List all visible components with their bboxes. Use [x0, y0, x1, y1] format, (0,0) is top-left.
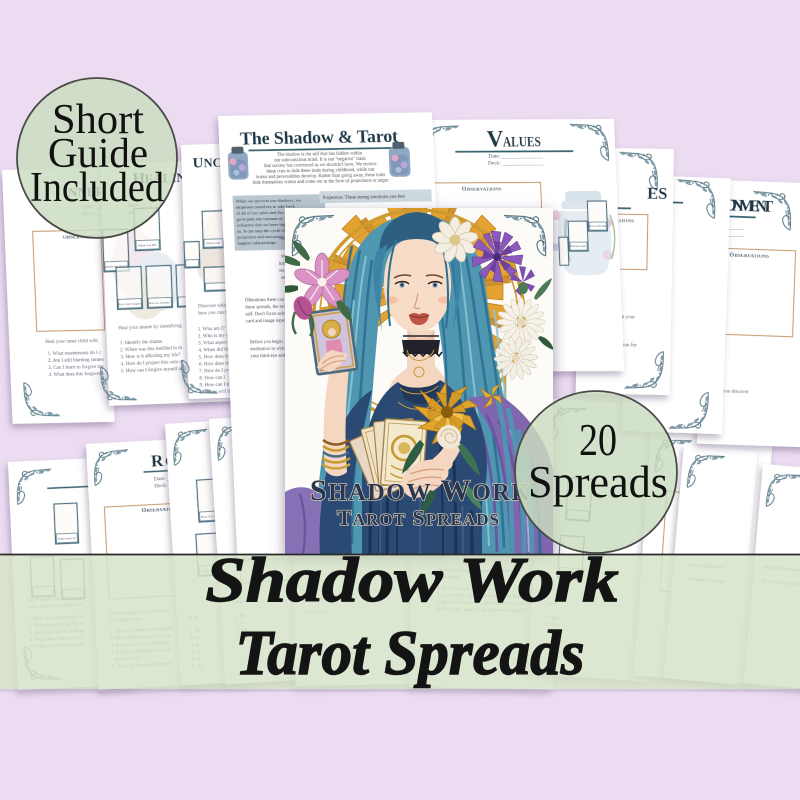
svg-text:U: U	[192, 155, 203, 171]
svg-text:How do I project: How do I project	[148, 300, 170, 305]
svg-text:card and image repres: card and image repres	[246, 319, 288, 325]
svg-text:happier relationships.: happier relationships.	[237, 240, 277, 246]
svg-text:7. How do I pr: 7. How do I pr	[199, 369, 229, 375]
svg-text:V: V	[486, 127, 504, 152]
svg-text:R: R	[150, 451, 164, 471]
svg-text:ES: ES	[647, 184, 668, 203]
svg-text:grow past any traumas or: grow past any traumas or	[236, 216, 283, 222]
svg-text:Deck: _______________: Deck: _______________	[488, 160, 544, 166]
svg-text:The Shadow & Tarot: The Shadow & Tarot	[240, 126, 399, 149]
svg-text:Oftentimes there can b: Oftentimes there can b	[245, 298, 288, 304]
svg-text:Included: Included	[30, 165, 164, 211]
svg-text:these spreads, the mor: these spreads, the mor	[245, 305, 287, 311]
svg-text:9. How can I b: 9. How can I b	[200, 383, 230, 389]
svg-text:Shadow Work: Shadow Work	[206, 544, 619, 615]
svg-text:Discover which: Discover which	[198, 304, 230, 310]
svg-text:us. It can stop the cycle of: us. It can stop the cycle of	[237, 228, 286, 234]
svg-text:What has been: What has been	[568, 244, 586, 248]
svg-text:5. How does th: 5. How does th	[199, 355, 230, 361]
svg-text:influence that we have ing: influence that we have ing	[237, 222, 286, 228]
svg-text:2. Who is my sh: 2. Who is my sh	[198, 334, 231, 340]
svg-text:What does th: What does th	[57, 536, 75, 541]
svg-text:When was this: When was this	[138, 243, 158, 248]
svg-text:4. When did th: 4. When did th	[198, 348, 228, 354]
svg-text:BSERVATIONS: BSERVATIONS	[467, 188, 502, 193]
svg-text:how you can h: how you can h	[198, 311, 228, 317]
svg-text:Tarot Spreads: Tarot Spreads	[236, 617, 585, 688]
svg-text:self. Don't focus solely: self. Don't focus solely	[246, 312, 290, 318]
svg-text:of all of our sides and this: of all of our sides and this	[236, 210, 284, 216]
svg-text:3. What aspect: 3. What aspect	[198, 341, 228, 347]
svg-text:1. Who am I?: 1. Who am I?	[198, 327, 226, 333]
svg-text:8. How can I: 8. How can I	[199, 376, 225, 382]
svg-text:How to fix this: How to fix this	[588, 224, 607, 228]
svg-text:What is the: What is the	[206, 241, 220, 245]
svg-text:ALUES: ALUES	[503, 134, 542, 150]
svg-text:projection and encourage: projection and encourage	[237, 234, 284, 240]
svg-text:Spreads: Spreads	[528, 456, 668, 507]
svg-text:Date: _______________: Date: _______________	[488, 153, 543, 159]
svg-text:6. How does th: 6. How does th	[199, 362, 230, 368]
